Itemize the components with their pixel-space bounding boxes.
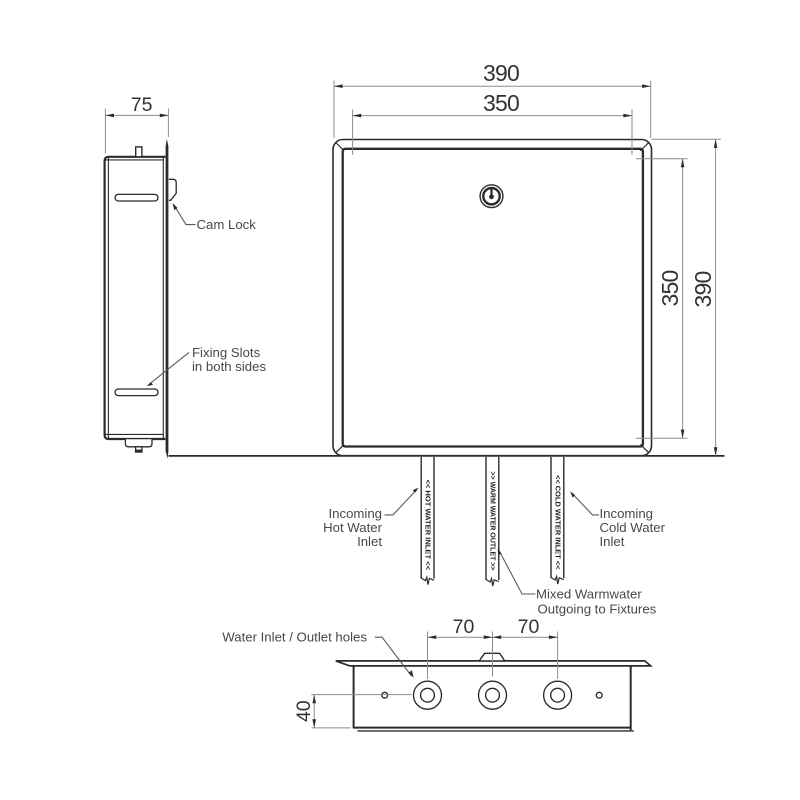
svg-text:Outgoing to Fixtures: Outgoing to Fixtures: [538, 602, 657, 617]
svg-text:Inlet: Inlet: [600, 534, 625, 549]
svg-text:390: 390: [483, 60, 519, 86]
svg-text:40: 40: [293, 700, 315, 722]
svg-text:Incoming: Incoming: [600, 506, 654, 521]
svg-text:Hot Water: Hot Water: [323, 520, 382, 535]
svg-text:<< HOT WATER INLET <<: << HOT WATER INLET <<: [424, 480, 431, 571]
svg-text:Incoming: Incoming: [328, 506, 382, 521]
svg-text:Water Inlet / Outlet holes: Water Inlet / Outlet holes: [222, 629, 367, 644]
svg-text:350: 350: [483, 90, 519, 116]
svg-text:Fixing Slots: Fixing Slots: [192, 345, 261, 360]
svg-text:350: 350: [657, 271, 683, 307]
svg-text:Mixed Warmwater: Mixed Warmwater: [536, 586, 642, 601]
svg-text:<< COLD WATER INLET <<: << COLD WATER INLET <<: [553, 475, 560, 570]
svg-text:70: 70: [518, 616, 540, 638]
svg-text:70: 70: [453, 616, 475, 638]
svg-text:Inlet: Inlet: [357, 534, 382, 549]
svg-text:>> WARM WATER OUTLET >>: >> WARM WATER OUTLET >>: [488, 472, 495, 571]
svg-text:in both sides: in both sides: [192, 359, 266, 374]
svg-text:75: 75: [131, 94, 153, 116]
svg-text:390: 390: [690, 272, 716, 308]
svg-text:Cam Lock: Cam Lock: [197, 217, 257, 232]
svg-text:Cold Water: Cold Water: [600, 520, 666, 535]
